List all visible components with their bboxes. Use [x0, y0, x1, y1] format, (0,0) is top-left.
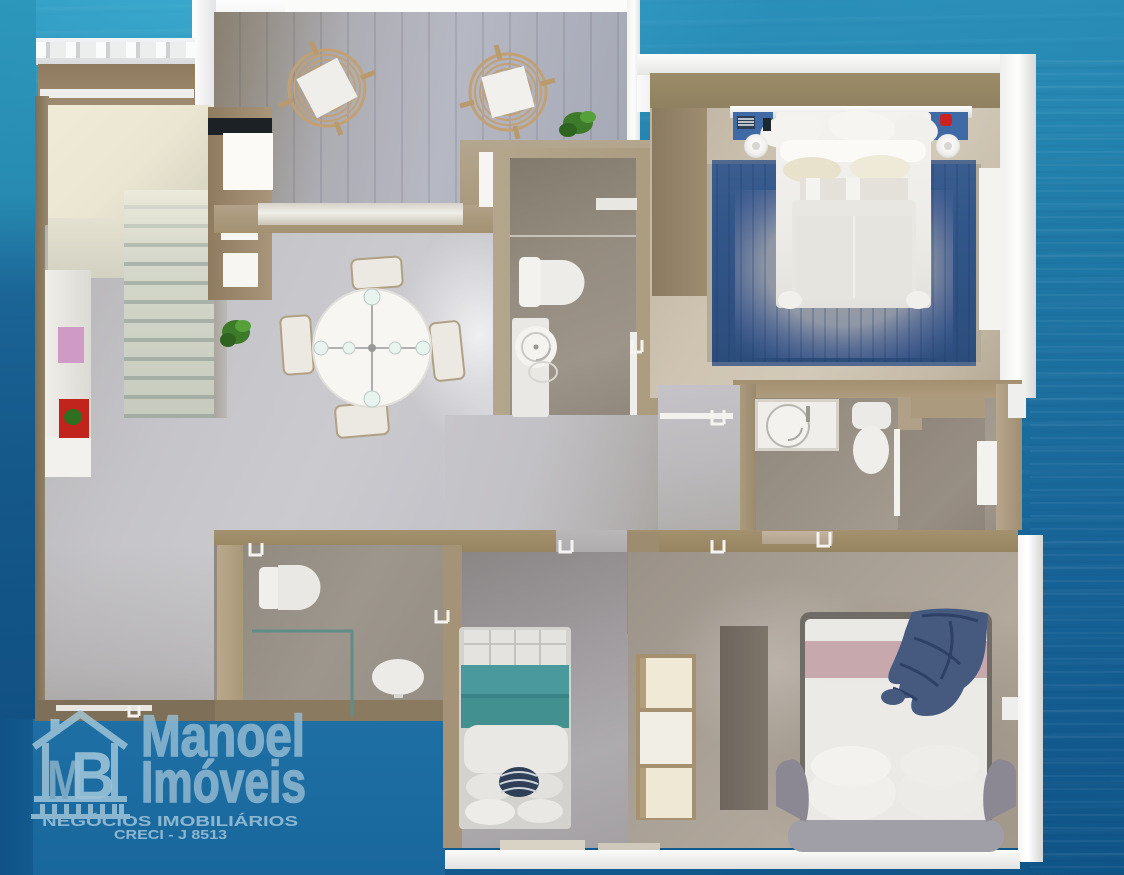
svg-text:Imóveis: Imóveis — [141, 750, 306, 815]
svg-text:CRECI - J 8513: CRECI - J 8513 — [114, 827, 227, 842]
svg-text:B: B — [71, 738, 115, 814]
